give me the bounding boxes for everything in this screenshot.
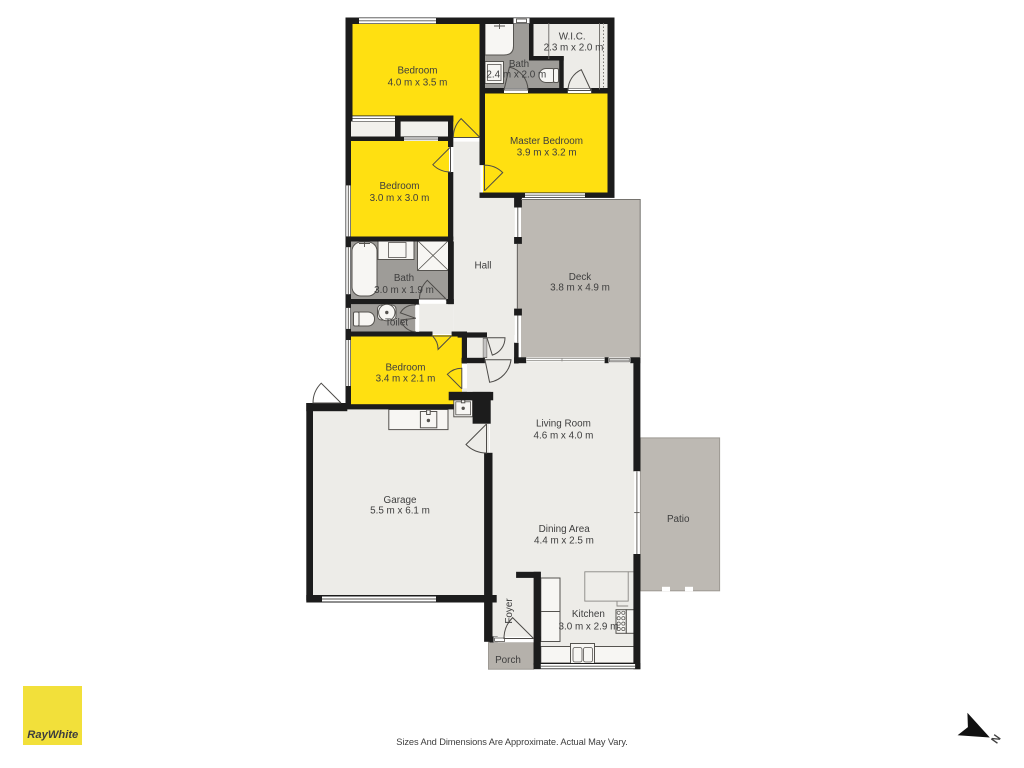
svg-text:N: N [988, 732, 1002, 745]
svg-text:Master Bedroom: Master Bedroom [510, 136, 583, 147]
svg-text:2.4 m x 2.0 m: 2.4 m x 2.0 m [486, 70, 546, 81]
svg-text:W.I.C.: W.I.C. [559, 32, 586, 43]
svg-text:3.9 m x 3.2 m: 3.9 m x 3.2 m [517, 147, 577, 158]
svg-text:Bedroom: Bedroom [385, 362, 425, 373]
svg-text:3.4 m x 2.1 m: 3.4 m x 2.1 m [376, 374, 436, 385]
svg-text:3.8 m x 4.9 m: 3.8 m x 4.9 m [550, 283, 610, 294]
svg-text:Bedroom: Bedroom [397, 65, 437, 76]
svg-text:4.6 m x 4.0 m: 4.6 m x 4.0 m [533, 431, 593, 442]
svg-text:Foyer: Foyer [504, 598, 515, 624]
svg-text:Bath: Bath [394, 273, 414, 284]
svg-text:Garage: Garage [384, 495, 417, 506]
svg-text:Porch: Porch [495, 655, 521, 666]
svg-text:Hall: Hall [474, 261, 491, 272]
svg-text:Patio: Patio [667, 514, 690, 525]
svg-text:5.5 m x 6.1 m: 5.5 m x 6.1 m [370, 506, 430, 517]
svg-text:3.0 m x 1.9 m: 3.0 m x 1.9 m [374, 285, 434, 296]
svg-text:Dining Area: Dining Area [539, 524, 591, 535]
svg-text:Bedroom: Bedroom [379, 181, 419, 192]
svg-text:Living Room: Living Room [536, 419, 591, 430]
svg-text:3.0 m x 2.9 m: 3.0 m x 2.9 m [558, 622, 618, 633]
svg-text:3.0 m x 3.0 m: 3.0 m x 3.0 m [370, 193, 430, 204]
svg-text:Bath: Bath [509, 59, 529, 70]
svg-text:4.4 m x 2.5 m: 4.4 m x 2.5 m [534, 536, 594, 547]
svg-text:Sizes And Dimensions Are Appro: Sizes And Dimensions Are Approximate. Ac… [396, 737, 627, 747]
svg-text:Deck: Deck [569, 272, 592, 283]
svg-text:RayWhite: RayWhite [27, 729, 78, 741]
svg-text:Toilet: Toilet [385, 317, 408, 328]
svg-text:Kitchen: Kitchen [572, 609, 605, 620]
svg-text:4.0 m x 3.5 m: 4.0 m x 3.5 m [388, 77, 448, 88]
svg-text:2.3 m x 2.0 m: 2.3 m x 2.0 m [544, 43, 604, 54]
